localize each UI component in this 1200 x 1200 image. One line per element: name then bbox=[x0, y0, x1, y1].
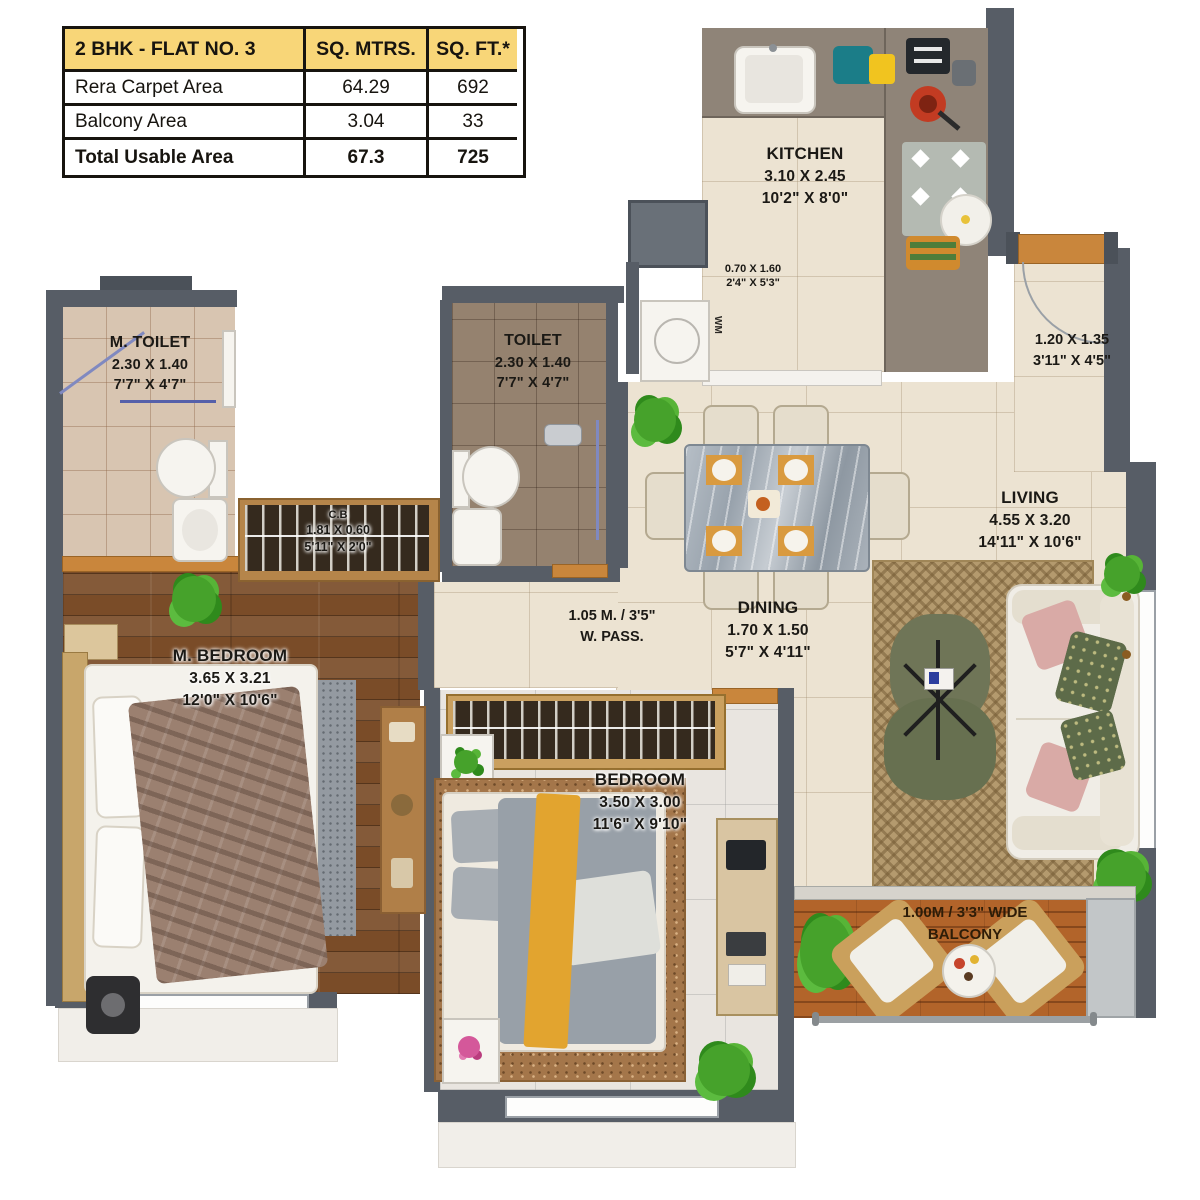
burner bbox=[911, 149, 929, 167]
wall bbox=[614, 382, 628, 568]
room-name: LIVING bbox=[925, 486, 1135, 510]
room-name: BEDROOM bbox=[520, 768, 760, 792]
flowers bbox=[458, 1036, 480, 1058]
placemat bbox=[778, 526, 814, 556]
room-name: KITCHEN bbox=[715, 142, 895, 166]
dining-label: DINING 1.70 X 1.50 5'7" X 4'11" bbox=[688, 596, 848, 664]
plant bbox=[634, 398, 676, 442]
washing-machine bbox=[640, 300, 710, 382]
wash-basin bbox=[452, 508, 502, 566]
room-dim-imperial: 12'0" X 10'6" bbox=[138, 690, 322, 712]
papers bbox=[726, 932, 766, 956]
balcony-label: 1.00M / 3'3" WIDE BALCONY bbox=[856, 902, 1074, 946]
grinder bbox=[952, 60, 976, 86]
bedroom-window bbox=[505, 1096, 719, 1118]
kitchen-label: KITCHEN 3.10 X 2.45 10'2" X 8'0" bbox=[715, 142, 895, 210]
tray-stripe bbox=[910, 254, 956, 260]
railing-post bbox=[812, 1012, 819, 1026]
area-table: 2 BHK - FLAT NO. 3 SQ. MTRS. SQ. FT.* Re… bbox=[62, 26, 526, 178]
foyer-label: 1.20 X 1.35 3'11" X 4'5" bbox=[1012, 330, 1132, 372]
pillow bbox=[92, 825, 146, 949]
railing-post bbox=[1090, 1012, 1097, 1026]
plate-center bbox=[961, 215, 970, 224]
room-dim-imperial: 7'7" X 4'7" bbox=[72, 375, 228, 396]
dim-imperial: 5'11" X 2'0" bbox=[268, 539, 408, 555]
laptop bbox=[726, 840, 766, 870]
dim-imperial: 2'4" X 5'3" bbox=[700, 276, 806, 290]
flower-table bbox=[442, 1018, 500, 1084]
row-sqm: 67.3 bbox=[303, 137, 426, 175]
room-dim-metric: 3.50 X 3.00 bbox=[520, 792, 760, 814]
dim-metric: 1.81 X 0.60 bbox=[268, 522, 408, 538]
placemat bbox=[706, 526, 742, 556]
floor-plan: WM bbox=[0, 0, 1200, 1200]
row-sqm: 64.29 bbox=[303, 69, 426, 103]
room-name: TOILET bbox=[460, 330, 606, 353]
plate bbox=[784, 459, 808, 481]
row-label: Rera Carpet Area bbox=[65, 69, 303, 103]
blanket bbox=[128, 686, 329, 984]
speaker-cone bbox=[101, 993, 125, 1017]
wall bbox=[778, 688, 794, 1092]
kitchen-box bbox=[869, 54, 895, 84]
table-centerpiece bbox=[748, 490, 780, 518]
table-row: Balcony Area 3.04 33 bbox=[65, 103, 523, 137]
burner bbox=[951, 149, 969, 167]
placemat bbox=[778, 455, 814, 485]
room-name: DINING bbox=[688, 596, 848, 620]
wall-sconce bbox=[1122, 650, 1131, 659]
room-dim-metric: 3.10 X 2.45 bbox=[715, 166, 895, 188]
red-pan bbox=[910, 86, 946, 122]
plant bbox=[454, 750, 478, 774]
dresser-item bbox=[389, 722, 415, 742]
centerpiece-dots bbox=[756, 497, 770, 511]
shower-head bbox=[544, 424, 582, 446]
main-entry-door bbox=[1018, 234, 1108, 264]
room-dim-metric: 2.30 X 1.40 bbox=[460, 353, 606, 374]
lounge-chair bbox=[884, 698, 996, 800]
plate bbox=[712, 530, 736, 552]
room-name: M. TOILET bbox=[72, 332, 228, 355]
food-dot bbox=[954, 958, 965, 969]
pan-center bbox=[919, 95, 937, 113]
balcony-table bbox=[942, 944, 996, 998]
col-header-sqm: SQ. MTRS. bbox=[303, 29, 426, 69]
faucet bbox=[769, 44, 777, 52]
balcony-width: 1.00M / 3'3" WIDE bbox=[856, 902, 1074, 924]
towel-rail bbox=[120, 400, 216, 403]
utility-label: 0.70 X 1.60 2'4" X 5'3" bbox=[700, 262, 806, 291]
wall bbox=[626, 262, 639, 374]
dim-imperial: 3'11" X 4'5" bbox=[1012, 351, 1132, 372]
room-dim-imperial: 10'2" X 8'0" bbox=[715, 188, 895, 210]
book-cover bbox=[929, 672, 939, 684]
table-title: 2 BHK - FLAT NO. 3 bbox=[65, 29, 303, 69]
wall bbox=[46, 290, 63, 1006]
wall bbox=[442, 286, 624, 303]
kitchen-sink bbox=[734, 46, 816, 114]
table-header-row: 2 BHK - FLAT NO. 3 SQ. MTRS. SQ. FT.* bbox=[65, 29, 523, 69]
kitchen-beam bbox=[702, 370, 882, 386]
dresser-item bbox=[391, 858, 413, 888]
wall-sconce bbox=[1122, 592, 1131, 601]
dim-metric: 1.20 X 1.35 bbox=[1012, 330, 1132, 351]
toilet-door-threshold bbox=[552, 564, 608, 578]
plate bbox=[712, 459, 736, 481]
plant bbox=[172, 576, 216, 622]
cb-label: C.B 1.81 X 0.60 5'11" X 2'0" bbox=[268, 508, 408, 555]
food-dot bbox=[964, 972, 973, 981]
passage-name: W. PASS. bbox=[550, 627, 674, 648]
bedroom-label: BEDROOM 3.50 X 3.00 11'6" X 9'10" bbox=[520, 768, 760, 836]
basin-bowl bbox=[182, 509, 218, 551]
col-header-sqft: SQ. FT.* bbox=[426, 29, 517, 69]
row-sqft: 725 bbox=[426, 137, 517, 175]
kitchen-appliance bbox=[906, 38, 950, 74]
room-dim-imperial: 5'7" X 4'11" bbox=[688, 642, 848, 664]
desk bbox=[716, 818, 778, 1016]
appliance-slot bbox=[914, 59, 942, 63]
plate bbox=[784, 530, 808, 552]
dresser bbox=[380, 706, 426, 914]
speaker bbox=[86, 976, 140, 1034]
burner bbox=[911, 187, 929, 205]
shower-glass bbox=[596, 420, 599, 540]
room-name: C.B bbox=[268, 508, 408, 522]
balcony-railing bbox=[816, 1016, 1092, 1023]
sliding-door-sill bbox=[794, 886, 1136, 900]
wall bbox=[55, 290, 237, 307]
table-total-row: Total Usable Area 67.3 725 bbox=[65, 137, 523, 175]
coffee-table-book bbox=[924, 668, 954, 690]
sink-basin bbox=[745, 55, 803, 103]
room-dim-imperial: 11'6" X 9'10" bbox=[520, 814, 760, 836]
food-dot bbox=[970, 955, 979, 964]
room-dim-imperial: 14'11" X 10'6" bbox=[925, 532, 1135, 554]
tray-stripe bbox=[910, 242, 956, 248]
row-sqm: 3.04 bbox=[303, 103, 426, 137]
papers bbox=[728, 964, 766, 986]
room-dim-metric: 1.70 X 1.50 bbox=[688, 620, 848, 642]
plant bbox=[698, 1044, 750, 1096]
m-bedroom-label: M. BEDROOM 3.65 X 3.21 12'0" X 10'6" bbox=[138, 644, 322, 712]
kitchen-tray bbox=[833, 46, 873, 84]
balcony-bench bbox=[1086, 898, 1136, 1018]
wm-label: WM bbox=[712, 316, 723, 334]
room-dim-metric: 3.65 X 3.21 bbox=[138, 668, 322, 690]
room-dim-metric: 2.30 X 1.40 bbox=[72, 355, 228, 376]
wc-bowl bbox=[156, 438, 216, 498]
table-row: Rera Carpet Area 64.29 692 bbox=[65, 69, 523, 103]
dresser-item bbox=[391, 794, 413, 816]
row-label: Total Usable Area bbox=[65, 137, 303, 175]
wall bbox=[440, 300, 452, 572]
door-jamb bbox=[1104, 232, 1118, 264]
placemat bbox=[706, 455, 742, 485]
room-name: M. BEDROOM bbox=[138, 644, 322, 668]
living-label: LIVING 4.55 X 3.20 14'11" X 10'6" bbox=[925, 486, 1135, 554]
passage-label: 1.05 M. / 3'5" W. PASS. bbox=[550, 606, 674, 648]
appliance-slot bbox=[914, 47, 942, 51]
room-dim-metric: 4.55 X 3.20 bbox=[925, 510, 1135, 532]
toilet-label: TOILET 2.30 X 1.40 7'7" X 4'7" bbox=[460, 330, 606, 394]
plant bbox=[1104, 556, 1140, 592]
serving-tray bbox=[906, 236, 960, 270]
duct-shaft bbox=[628, 200, 708, 268]
balcony-name: BALCONY bbox=[856, 924, 1074, 946]
row-sqft: 33 bbox=[426, 103, 517, 137]
wash-basin bbox=[172, 498, 228, 562]
closet-rail bbox=[453, 727, 715, 729]
wm-drum bbox=[654, 318, 700, 364]
ledge bbox=[438, 1122, 796, 1168]
m-toilet-label: M. TOILET 2.30 X 1.40 7'7" X 4'7" bbox=[72, 332, 228, 396]
room-dim-imperial: 7'7" X 4'7" bbox=[460, 373, 606, 394]
dim-metric: 0.70 X 1.60 bbox=[700, 262, 806, 276]
passage-width: 1.05 M. / 3'5" bbox=[550, 606, 674, 627]
wc-bowl bbox=[462, 446, 520, 508]
row-sqft: 692 bbox=[426, 69, 517, 103]
row-label: Balcony Area bbox=[65, 103, 303, 137]
